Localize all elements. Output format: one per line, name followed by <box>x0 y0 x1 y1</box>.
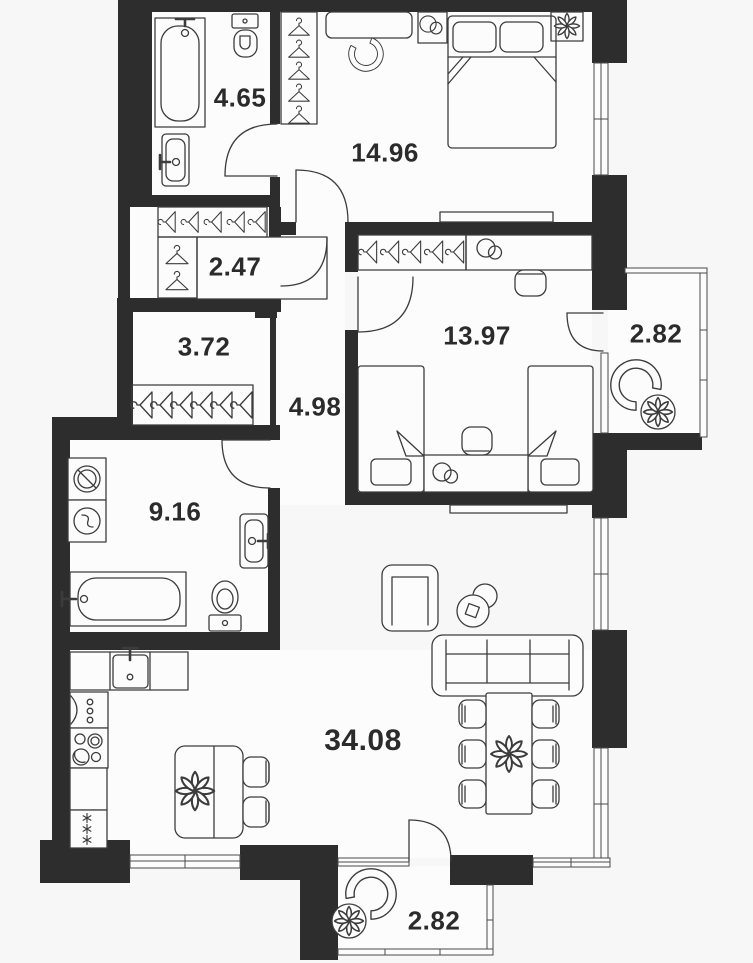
plant-icon <box>641 395 675 429</box>
room-label-hallway: 3.72 <box>178 332 231 363</box>
kitchen-window <box>130 855 240 868</box>
room-label-bathroom-large: 9.16 <box>149 497 202 528</box>
toilet-icon <box>232 14 258 57</box>
living-window-upper <box>594 518 608 630</box>
room-label-balcony-right: 2.82 <box>630 319 683 350</box>
single-bed-icon <box>528 366 593 492</box>
desk-icon <box>424 455 528 492</box>
washing-machine-icon <box>68 458 106 500</box>
dryer-icon <box>68 500 106 542</box>
radiator <box>450 505 567 513</box>
desk-icon <box>326 12 412 38</box>
stove-icon <box>70 728 108 768</box>
desk-chair-icon <box>515 270 546 296</box>
radiator <box>440 212 553 222</box>
balcony-bottom-window-wall <box>338 858 409 866</box>
desk-chair-icon <box>462 427 492 455</box>
cabinet <box>70 768 107 810</box>
dining-chair-icon <box>532 700 559 728</box>
plant-icon <box>332 904 366 938</box>
room-label-living-kitchen: 34.08 <box>324 724 402 758</box>
single-bed-icon <box>358 366 424 492</box>
toilet-icon <box>209 581 241 631</box>
room-label-closet: 2.47 <box>209 252 262 283</box>
double-bed-icon <box>448 16 556 148</box>
dining-chair-icon <box>532 780 559 808</box>
stool-icon <box>243 797 269 827</box>
dining-chair-icon <box>459 740 486 768</box>
dining-chair-icon <box>459 700 486 728</box>
sofa-icon <box>432 635 583 696</box>
living-window-bottom <box>533 858 610 867</box>
island-table-icon <box>175 746 243 838</box>
floor-lamp-icon <box>457 584 497 627</box>
stool-icon <box>243 757 269 787</box>
room-label-corridor: 4.98 <box>289 392 342 423</box>
room-label-bathroom-small: 4.65 <box>214 83 267 114</box>
bedroom-window <box>594 63 608 175</box>
living-window-lower <box>594 748 608 861</box>
armchair-icon <box>382 565 438 631</box>
room-label-balcony-bottom: 2.82 <box>408 906 461 937</box>
bathtub-icon <box>155 18 205 127</box>
bathtub-icon <box>62 572 186 626</box>
fridge-icon <box>70 810 107 848</box>
sink-icon <box>160 134 189 186</box>
dining-chair-icon <box>532 740 559 768</box>
room-label-bedroom: 14.96 <box>351 138 419 169</box>
dining-chair-icon <box>459 780 486 808</box>
sink-icon <box>240 514 268 568</box>
floor-plan: 4.65 14.96 2.47 3.72 13.97 2.82 4.98 9.1… <box>0 0 753 963</box>
dining-table-icon <box>486 693 532 814</box>
room-label-kids-bedroom: 13.97 <box>443 321 511 352</box>
oven-icon <box>70 692 108 728</box>
